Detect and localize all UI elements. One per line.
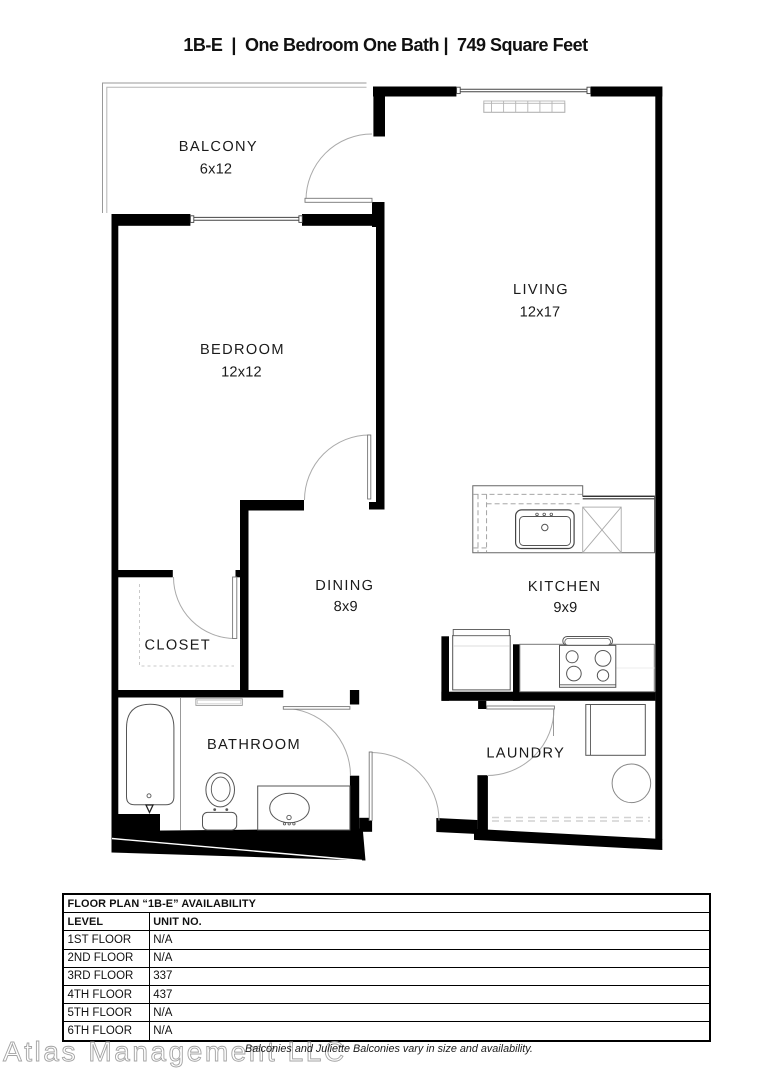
svg-text:BEDROOM: BEDROOM xyxy=(200,342,285,358)
svg-text:BATHROOM: BATHROOM xyxy=(207,737,301,753)
svg-text:8x9: 8x9 xyxy=(334,599,358,615)
svg-text:12x17: 12x17 xyxy=(520,305,561,321)
svg-text:KITCHEN: KITCHEN xyxy=(528,579,602,595)
svg-text:DINING: DINING xyxy=(315,578,374,594)
svg-text:LAUNDRY: LAUNDRY xyxy=(486,746,565,762)
svg-text:6x12: 6x12 xyxy=(200,162,232,178)
svg-text:12x12: 12x12 xyxy=(221,365,262,381)
svg-text:BALCONY: BALCONY xyxy=(179,139,258,155)
svg-text:CLOSET: CLOSET xyxy=(145,638,212,654)
svg-text:LIVING: LIVING xyxy=(513,282,569,298)
svg-text:9x9: 9x9 xyxy=(553,600,577,616)
